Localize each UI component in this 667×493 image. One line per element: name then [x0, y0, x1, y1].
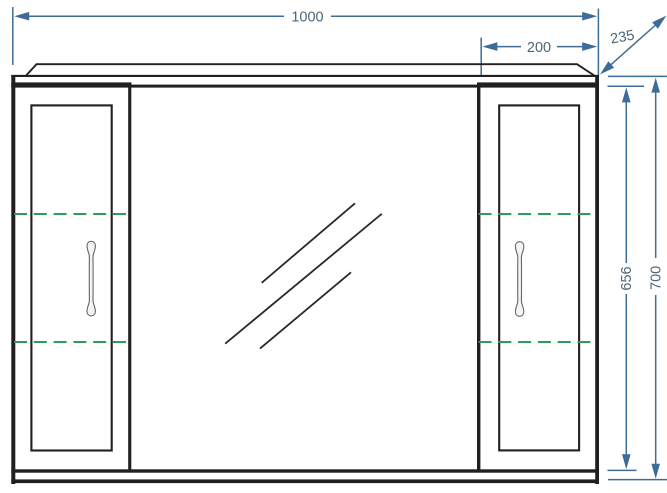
svg-text:656: 656 — [619, 266, 635, 290]
svg-text:700: 700 — [649, 266, 665, 290]
svg-text:200: 200 — [527, 40, 551, 56]
svg-text:1000: 1000 — [291, 10, 323, 26]
